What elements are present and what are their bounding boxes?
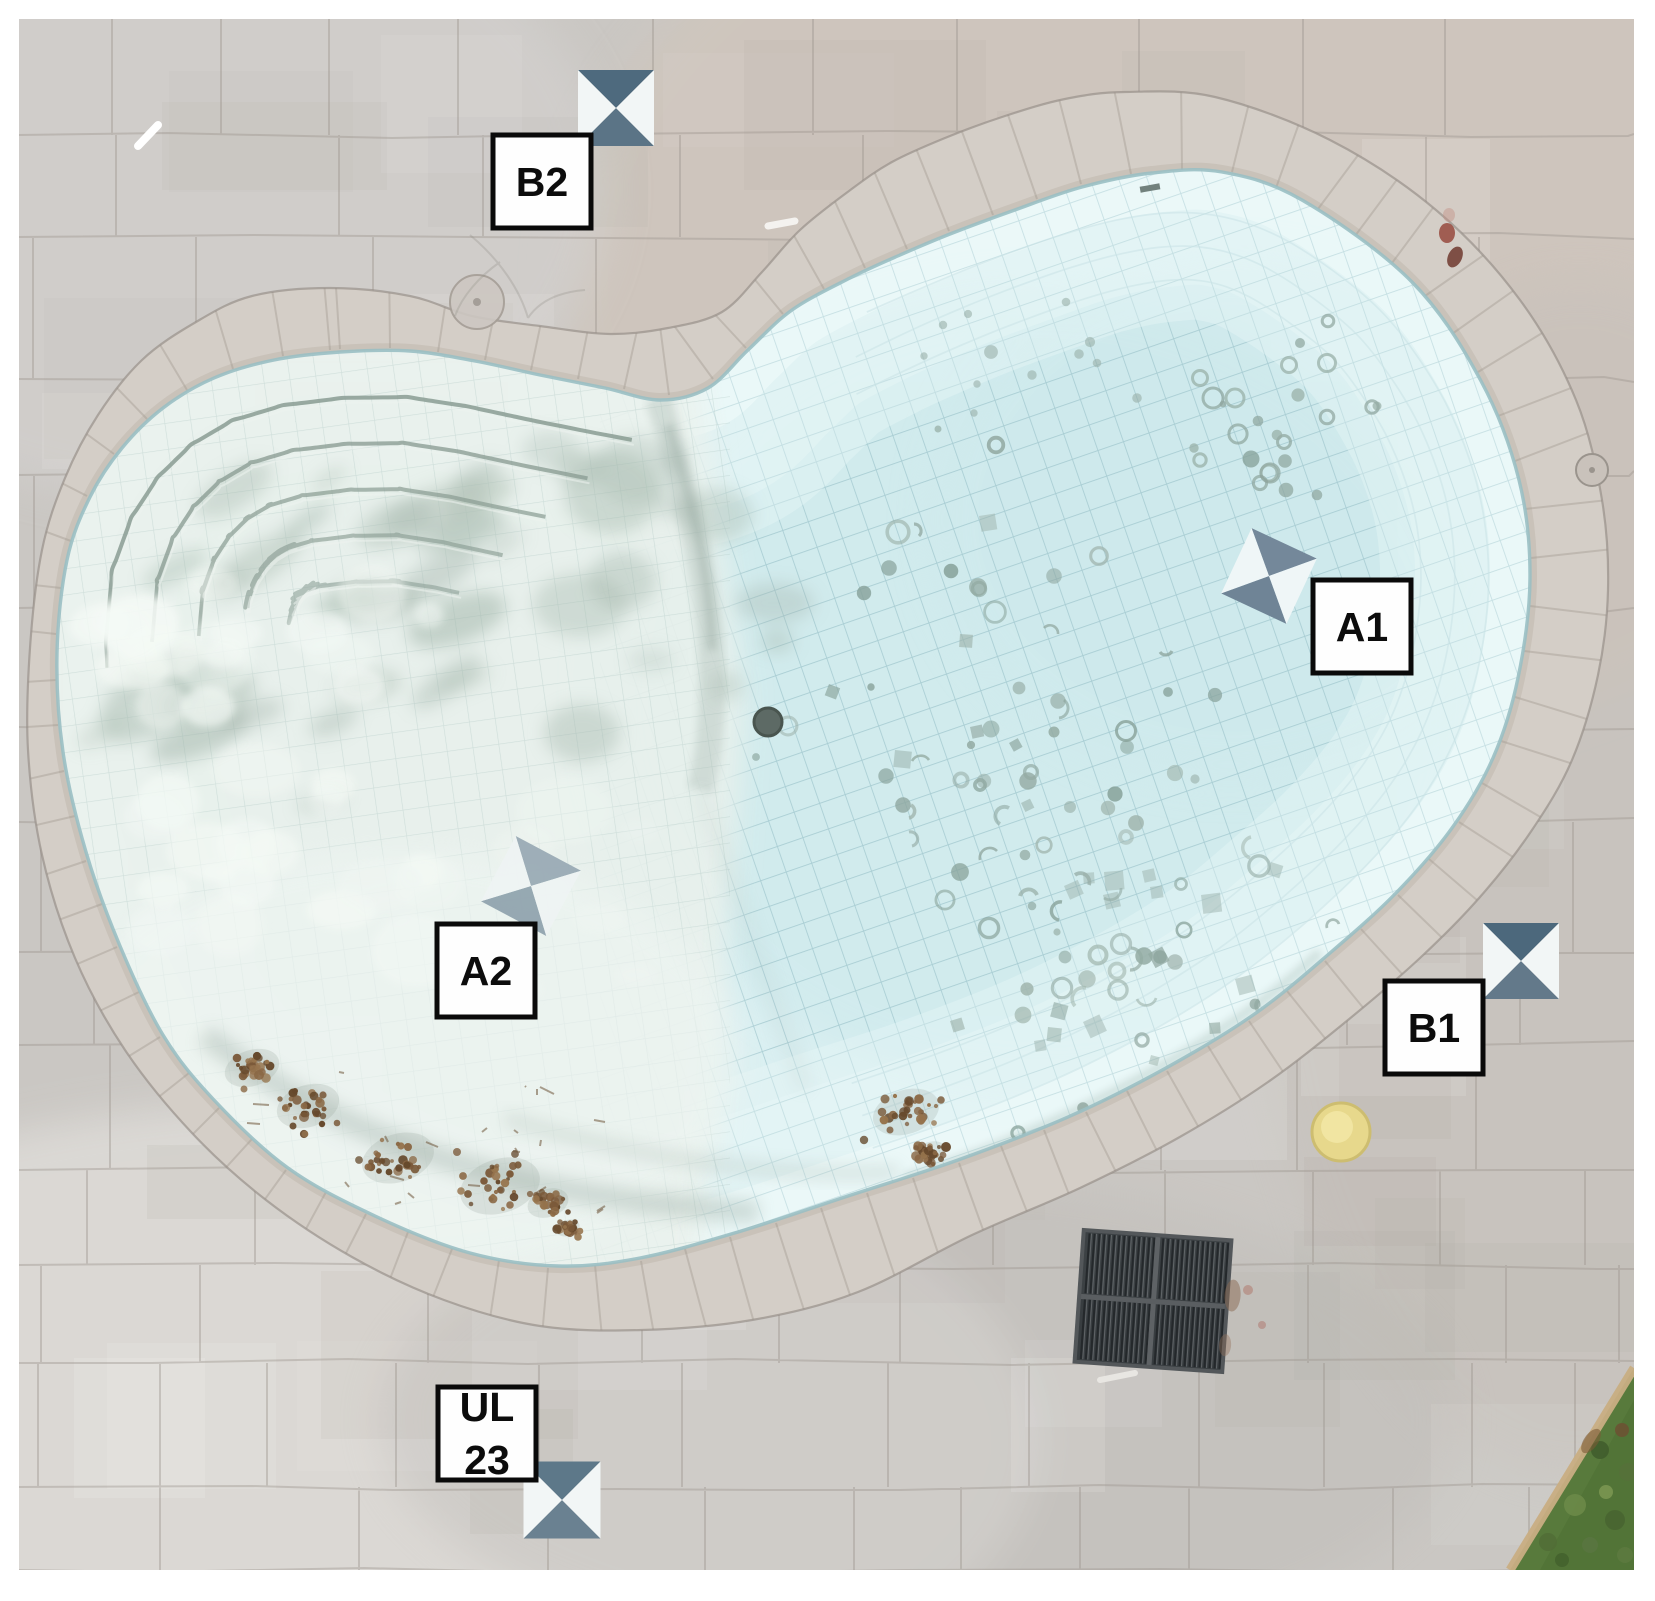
- svg-text:B2: B2: [516, 159, 568, 205]
- svg-text:A1: A1: [1336, 604, 1388, 650]
- svg-text:B1: B1: [1408, 1005, 1460, 1051]
- svg-text:UL: UL: [460, 1384, 515, 1430]
- svg-text:A2: A2: [460, 948, 512, 994]
- svg-text:23: 23: [464, 1437, 510, 1483]
